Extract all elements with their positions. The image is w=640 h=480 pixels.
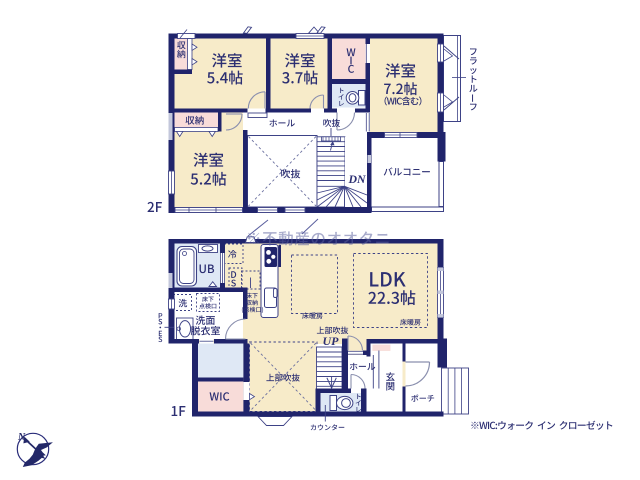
svg-text:DN: DN xyxy=(348,172,367,186)
svg-text:UP: UP xyxy=(323,334,340,348)
